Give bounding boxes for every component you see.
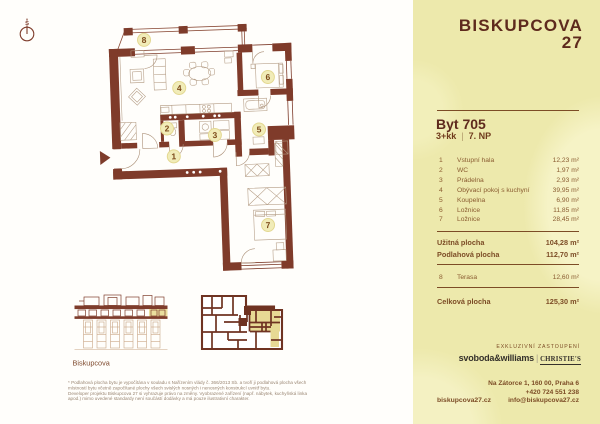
svg-text:4: 4 — [177, 83, 182, 93]
svg-text:6: 6 — [265, 72, 270, 82]
svg-text:* Podlahová plocha bytu je vyp: * Podlahová plocha bytu je vypočítána v … — [68, 380, 307, 385]
svg-text:místností bytu včetně započíta: místností bytu včetně započítané plochy … — [68, 385, 270, 390]
svg-text:Biskupcova: Biskupcova — [73, 359, 111, 368]
svg-text:7: 7 — [266, 220, 271, 230]
svg-text:2: 2 — [164, 123, 169, 133]
svg-text:apod.) mimo uvedené standardy: apod.) mimo uvedené standardy není součá… — [68, 396, 250, 401]
svg-text:3: 3 — [212, 130, 217, 140]
svg-text:S: S — [25, 21, 29, 27]
svg-text:Developer projektu Biskupcova: Developer projektu Biskupcova 27 si vyhr… — [68, 391, 307, 396]
svg-text:1: 1 — [171, 151, 176, 161]
svg-text:5: 5 — [256, 124, 261, 134]
svg-text:8: 8 — [141, 35, 146, 45]
